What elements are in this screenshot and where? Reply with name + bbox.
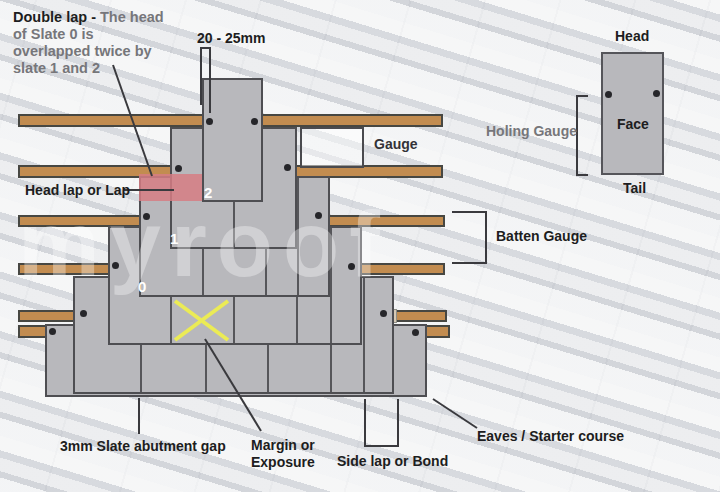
- margin-label-line1: Margin or: [251, 437, 315, 453]
- nail-hole-dot: [380, 310, 387, 317]
- slate-number-0: 0: [138, 278, 146, 295]
- nail-hole-dot: [112, 262, 119, 269]
- nail-hole-dot: [80, 310, 87, 317]
- eaves-label: Eaves / Starter course: [477, 428, 624, 444]
- watermark: myroof: [18, 192, 390, 297]
- double-lap-note: Double lap - The head of Slate 0 is over…: [13, 9, 165, 77]
- head-lap-label: Head lap or Lap: [25, 182, 130, 198]
- margin-label-line2: Exposure: [251, 454, 315, 470]
- nail-hole-dot: [412, 329, 419, 336]
- abutment-gap-label: 3mm Slate abutment gap: [60, 438, 226, 454]
- side-lap-label: Side lap or Bond: [337, 453, 448, 469]
- nail-hole-dot: [653, 90, 660, 97]
- head-lap-highlight: [139, 174, 202, 201]
- demo-slate: [601, 52, 664, 175]
- nail-hole-dot: [143, 213, 150, 220]
- double-lap-slating-diagram: myroof Double lap - The head of Slate 0 …: [0, 0, 720, 492]
- slate-face-label: Face: [617, 116, 649, 132]
- slate-tail-label: Tail: [623, 180, 646, 196]
- nail-hole-dot: [284, 164, 291, 171]
- batten-gauge-bracket: [452, 212, 486, 263]
- batten-gauge-label: Batten Gauge: [496, 228, 587, 244]
- nail-hole-dot: [605, 91, 612, 98]
- nail-hole-dot: [175, 165, 182, 172]
- nail-hole-dot: [206, 118, 213, 125]
- nail-hole-dot: [251, 118, 258, 125]
- holing-gauge-label: Holing Gauge: [486, 123, 577, 139]
- gauge-label: Gauge: [374, 136, 418, 152]
- double-lap-note-bold: Double lap -: [13, 9, 100, 25]
- nail-hole-dot: [348, 263, 355, 270]
- nail-hole-dot: [49, 328, 56, 335]
- slate-number-1: 1: [170, 230, 178, 247]
- nail-hole-dot: [315, 212, 322, 219]
- holing-gauge-bracket: [577, 96, 588, 175]
- eaves-leader-line: [433, 399, 477, 428]
- gauge-box: [301, 128, 363, 167]
- side-lap-bracket: [365, 399, 398, 446]
- slate-number-2: 2: [204, 184, 212, 201]
- nail-distance-label: 20 - 25mm: [197, 30, 265, 46]
- slate-head-label: Head: [615, 28, 649, 44]
- margin-label: Margin or Exposure: [251, 437, 315, 471]
